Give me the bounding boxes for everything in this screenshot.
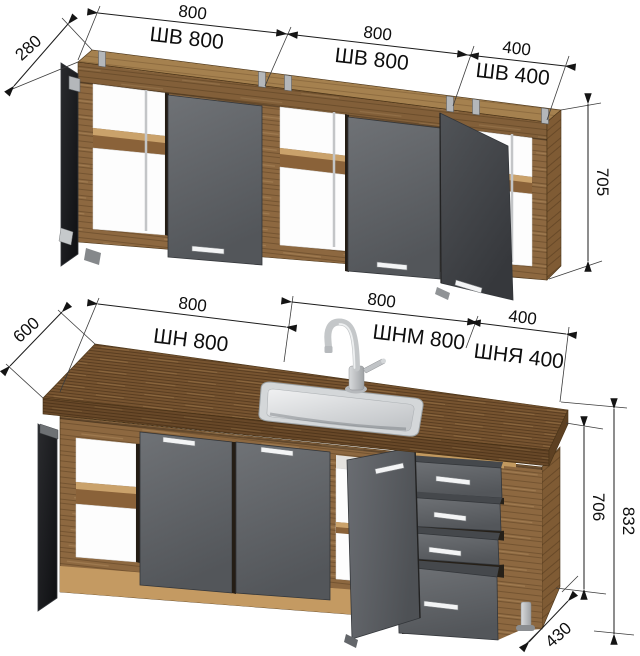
- base-door-gap: [232, 442, 236, 594]
- wall-cab2-door: [348, 117, 440, 279]
- mount-bracket-icon: [259, 72, 266, 88]
- faucet-spout-tip: [325, 346, 333, 353]
- base-cab1-width: 800: [177, 293, 207, 315]
- base-cab1-door: [140, 432, 232, 593]
- wall-carcass-right-side: [547, 110, 561, 280]
- wall-height-value: 705: [593, 168, 612, 196]
- adjustable-foot-icon: [521, 602, 531, 628]
- base-carcass-right-side: [542, 447, 560, 629]
- base-cab3-name: ШНЯ 400: [473, 340, 566, 374]
- base-cabinet-height-value: 706: [589, 493, 608, 521]
- wall-cab1-hinge-bracket: [69, 76, 80, 92]
- base-cab1-open-door: [38, 424, 57, 611]
- mount-bracket-icon: [447, 96, 454, 112]
- wall-cab1-opening-lower: [93, 148, 165, 235]
- base-cab2-width: 800: [366, 289, 396, 311]
- wall-cab3-name: ШВ 400: [475, 59, 551, 90]
- wall-cab2-name: ШВ 800: [334, 44, 410, 75]
- wall-cab2-opening-lower: [280, 167, 348, 251]
- base-cab1-opening-upper: [76, 438, 136, 487]
- adjustable-foot-base: [516, 625, 535, 631]
- wall-cab1-bottom-hook-icon: [84, 248, 101, 265]
- sink-cabinet-open-door: [347, 447, 420, 639]
- wall-cab1-name: ШВ 800: [149, 23, 225, 54]
- wall-cabinets-assembly: [59, 50, 561, 300]
- faucet-neck: [328, 322, 357, 368]
- mount-bracket-icon: [473, 99, 480, 115]
- kitchen-dimension-drawing: 280 800 ШВ 800 800 ШВ 800 400 ШВ 400 705: [0, 0, 640, 656]
- mount-bracket-icon: [99, 51, 106, 67]
- wall-cab1-width: 800: [177, 1, 207, 23]
- base-depth-value: 600: [9, 313, 43, 346]
- wall-cab1-opening-upper: [93, 84, 165, 136]
- base-cabinets-assembly: [38, 322, 568, 648]
- mount-bracket-icon: [542, 108, 549, 124]
- base-cab2-door: [236, 442, 330, 600]
- wall-cab2-hinge-hook-icon: [435, 287, 450, 300]
- faucet-lever-knob: [381, 359, 386, 364]
- base-cab1-name: ШН 800: [152, 325, 230, 357]
- base-cab2-name: ШНМ 800: [371, 320, 466, 354]
- mount-bracket-icon: [285, 75, 292, 91]
- wall-depth-value: 280: [11, 31, 45, 64]
- wall-cab1-door: [168, 95, 262, 265]
- base-cab1-door-gap: [136, 444, 140, 563]
- wall-cab3-width: 400: [501, 37, 531, 59]
- wall-cab2-opening-upper: [280, 107, 348, 156]
- drawing-canvas: 280 800 ШВ 800 800 ШВ 800 400 ШВ 400 705: [0, 0, 640, 656]
- base-cab1-opening-lower: [76, 504, 136, 562]
- base-total-height-value: 832: [619, 507, 638, 535]
- wall-cab2-width: 800: [362, 22, 392, 44]
- base-cab3-width: 400: [507, 306, 537, 328]
